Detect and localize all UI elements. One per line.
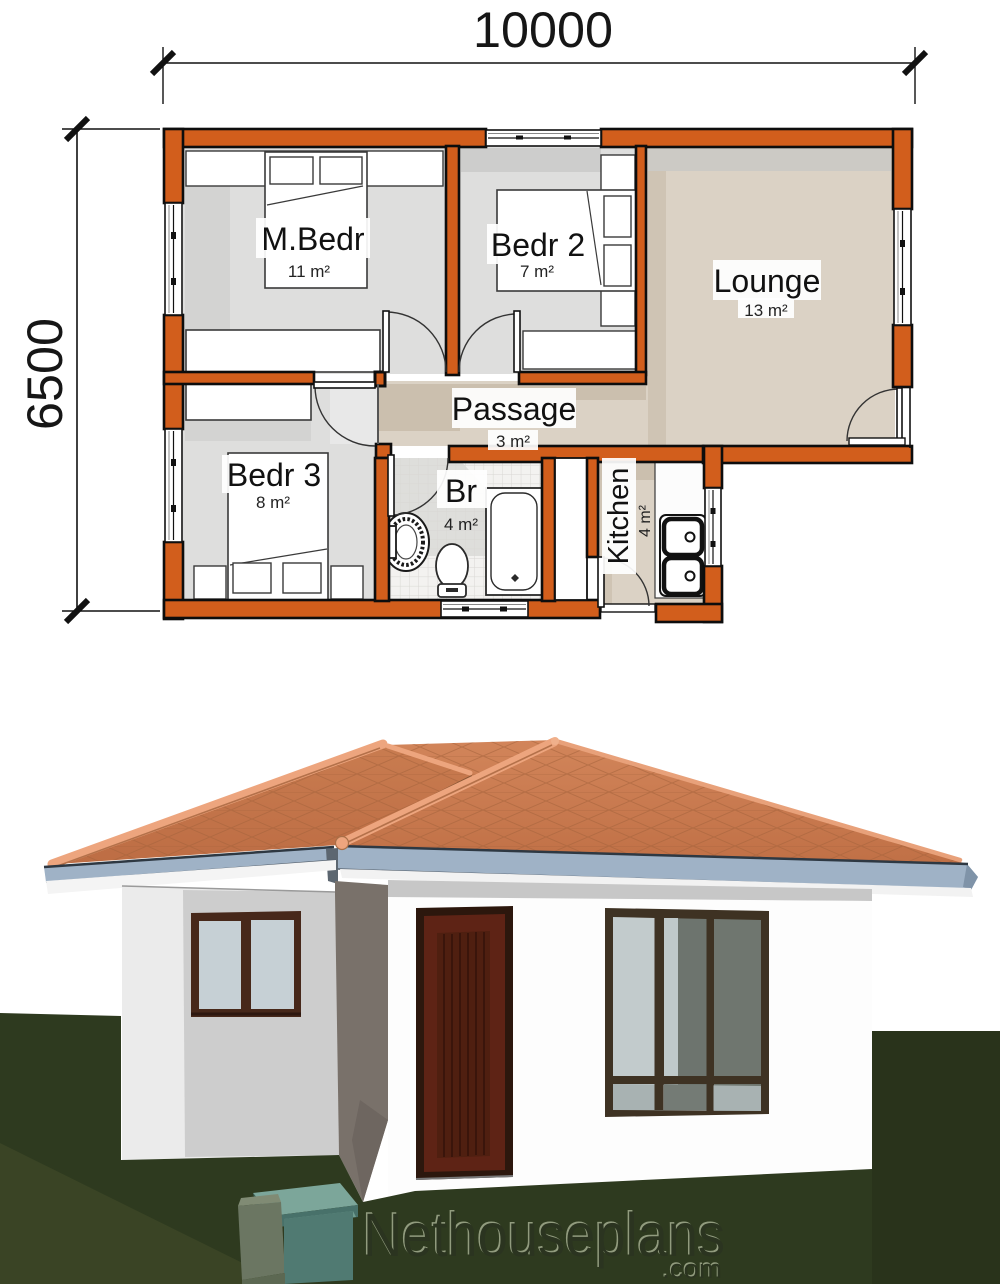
svg-text:Kitchen: Kitchen (603, 468, 635, 565)
svg-text:4 m²: 4 m² (444, 515, 478, 534)
svg-text:7 m²: 7 m² (520, 262, 554, 281)
svg-text:13 m²: 13 m² (744, 301, 788, 320)
svg-text:Passage: Passage (452, 391, 577, 427)
svg-text:6500: 6500 (17, 318, 73, 430)
svg-text:8 m²: 8 m² (256, 493, 290, 512)
svg-text:M.Bedr: M.Bedr (261, 221, 364, 257)
svg-text:Lounge: Lounge (714, 263, 821, 299)
svg-text:Bedr 3: Bedr 3 (227, 457, 321, 493)
svg-text:Bedr 2: Bedr 2 (491, 227, 585, 263)
svg-text:.com: .com (662, 1254, 722, 1284)
svg-text:Br: Br (445, 473, 477, 509)
svg-text:4 m²: 4 m² (637, 504, 654, 537)
svg-text:11 m²: 11 m² (288, 262, 331, 281)
svg-text:10000: 10000 (473, 2, 613, 58)
svg-text:3 m²: 3 m² (496, 432, 530, 451)
